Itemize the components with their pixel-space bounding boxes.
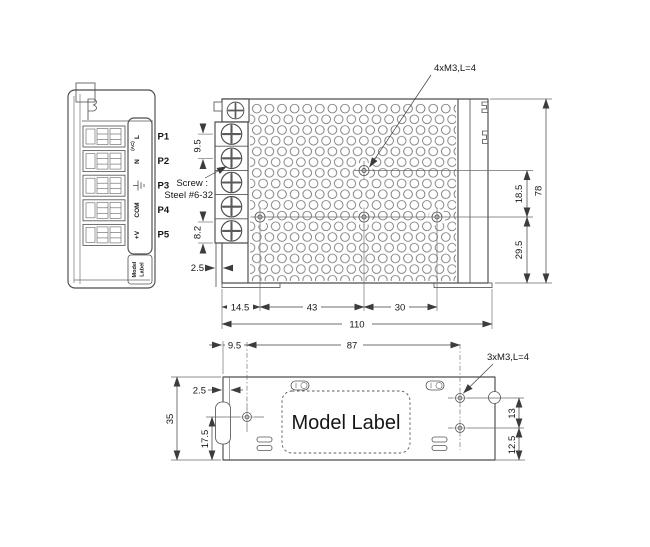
power-supply-mechanical-drawing: 4xM3,L=4 Screw : Steel #6-32 9.5 8.2 2.5 xyxy=(0,0,650,547)
terminal-block-side xyxy=(215,122,248,287)
screw-note-line2: Steel #6-32 xyxy=(164,190,213,201)
front-mounting-callout: 4xM3,L=4 xyxy=(434,63,476,74)
dim-overall-height: 78 xyxy=(534,186,545,197)
pin-label-5: P5 xyxy=(158,230,170,241)
vent-slot xyxy=(257,446,272,451)
bottom-mounting-callout: 3xM3,L=4 xyxy=(487,352,529,363)
terminal-block-bottom-tab xyxy=(216,402,231,444)
front-view: 4xM3,L=4 Screw : Steel #6-32 9.5 8.2 2.5 xyxy=(164,63,552,331)
pin-label-1: P1 xyxy=(158,132,170,143)
bottom-right-dimensions: 13 12.5 xyxy=(495,398,525,460)
terminal-screw-1 xyxy=(221,124,241,144)
mounting-hole-bottom-lower xyxy=(451,419,468,436)
terminal-cell-2 xyxy=(83,151,125,172)
terminal-com-label: COM xyxy=(134,202,141,217)
end-model-label-line2: Label xyxy=(140,262,146,277)
ground-screw xyxy=(227,102,244,119)
vent-slot xyxy=(257,437,272,442)
dim-bottom-edge-offset: 2.5 xyxy=(193,386,206,397)
terminal-cell-3 xyxy=(83,175,125,196)
vent-slot xyxy=(432,446,447,451)
mounting-hole-bottom-left xyxy=(238,408,255,425)
end-model-label-line1: Model xyxy=(132,261,138,277)
pin-label-4: P4 xyxy=(158,205,170,216)
dim-terminal-pitch: 9.5 xyxy=(193,139,204,152)
end-view: L (AC) N COM +V Model Label P1 P2 P3 P4 … xyxy=(68,83,170,288)
terminal-screw-2 xyxy=(221,148,241,168)
technical-drawing-page: 4xM3,L=4 Screw : Steel #6-32 9.5 8.2 2.5 xyxy=(0,0,650,547)
end-model-label-box: Model Label xyxy=(128,255,152,284)
terminal-neutral-label: N xyxy=(134,159,141,164)
dim-bottom-hole-offset-left: 9.5 xyxy=(228,341,241,352)
terminal-vpos-label: +V xyxy=(134,230,141,239)
case-foot-left xyxy=(222,283,280,288)
terminal-cell-5 xyxy=(83,224,125,245)
dim-bottom-hole-gap: 13 xyxy=(507,408,518,419)
terminal-label-strip: L (AC) N COM +V xyxy=(128,118,152,254)
terminal-screw-3 xyxy=(221,172,241,192)
terminal-cell-1 xyxy=(83,126,125,147)
dim-hole-spacing-1: 43 xyxy=(307,303,318,314)
side-screw-notch xyxy=(489,392,501,404)
snap-slot-right xyxy=(426,381,444,390)
dim-block-offset: 2.5 xyxy=(191,263,204,274)
case-foot-right xyxy=(434,283,492,288)
earth-ground-icon xyxy=(133,181,144,191)
ventilation-grille xyxy=(250,103,456,281)
screw-note-line1: Screw : xyxy=(176,178,208,189)
bottom-left-dimensions: 35 17.5 2.5 xyxy=(165,377,243,460)
front-right-dimensions: 18.5 29.5 78 xyxy=(490,99,552,283)
terminal-cell-4 xyxy=(83,200,125,221)
dim-hole-spacing-2: 30 xyxy=(395,303,406,314)
snap-slot-left xyxy=(291,381,309,390)
dim-terminal-bottom: 8.2 xyxy=(193,226,204,239)
pin-label-2: P2 xyxy=(158,156,170,167)
mounting-hole-bottom-top xyxy=(451,389,468,406)
dim-bottom-hole-spacing: 87 xyxy=(347,341,358,352)
terminal-screw-4 xyxy=(221,197,241,217)
dim-hole-row-bottom: 29.5 xyxy=(514,241,525,260)
vent-slot xyxy=(432,437,447,442)
dim-hole-row-gap: 18.5 xyxy=(514,185,525,204)
rail-notch-mid xyxy=(483,131,489,144)
dim-bottom-hole-offset-bottom: 17.5 xyxy=(200,430,211,449)
bottom-model-label: Model Label xyxy=(282,391,410,453)
bottom-callout-leader xyxy=(464,364,494,393)
terminal-live-sub-label: (AC) xyxy=(130,141,135,151)
terminal-live-label: L xyxy=(134,135,141,139)
dim-hole-offset-left: 14.5 xyxy=(231,303,250,314)
dim-bottom-hole-edge: 12.5 xyxy=(507,436,518,455)
dim-bottom-overall-depth: 35 xyxy=(165,414,176,425)
bottom-model-label-text: Model Label xyxy=(292,412,401,434)
rail-notch-top xyxy=(482,102,488,113)
bottom-view: Model Label 3xM3,L=4 9.5 87 xyxy=(165,340,529,461)
dim-overall-width: 110 xyxy=(349,320,364,331)
bottom-top-dimensions: 9.5 87 xyxy=(209,340,460,375)
pin-label-3: P3 xyxy=(158,181,170,192)
terminal-screw-5 xyxy=(221,221,241,241)
